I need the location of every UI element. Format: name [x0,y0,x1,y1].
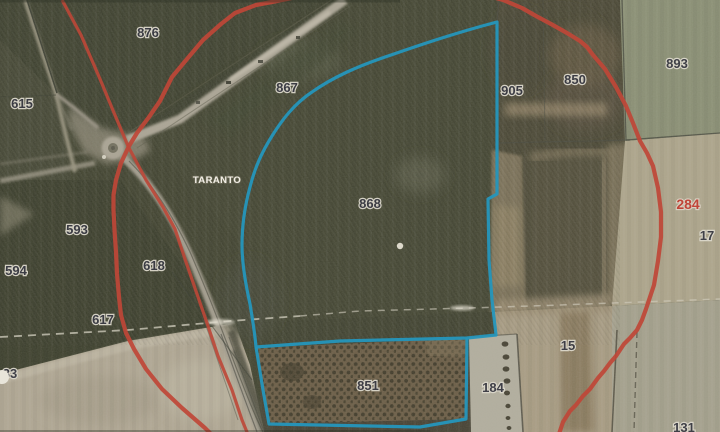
svg-text:184: 184 [482,380,504,395]
svg-text:594: 594 [5,263,27,278]
svg-text:867: 867 [276,80,298,95]
svg-text:876: 876 [137,25,159,40]
svg-text:905: 905 [501,83,523,98]
svg-text:868: 868 [359,196,381,211]
svg-text:618: 618 [143,258,165,273]
svg-text:593: 593 [66,222,88,237]
svg-text:131: 131 [673,420,695,432]
svg-text:TARANTO: TARANTO [193,175,241,186]
svg-text:615: 615 [11,96,33,111]
svg-text:17: 17 [700,228,714,243]
svg-text:15: 15 [561,338,575,353]
svg-text:284: 284 [676,196,700,212]
svg-text:850: 850 [564,72,586,87]
svg-text:617: 617 [92,312,114,327]
svg-text:893: 893 [666,56,688,71]
svg-text:851: 851 [357,378,379,393]
